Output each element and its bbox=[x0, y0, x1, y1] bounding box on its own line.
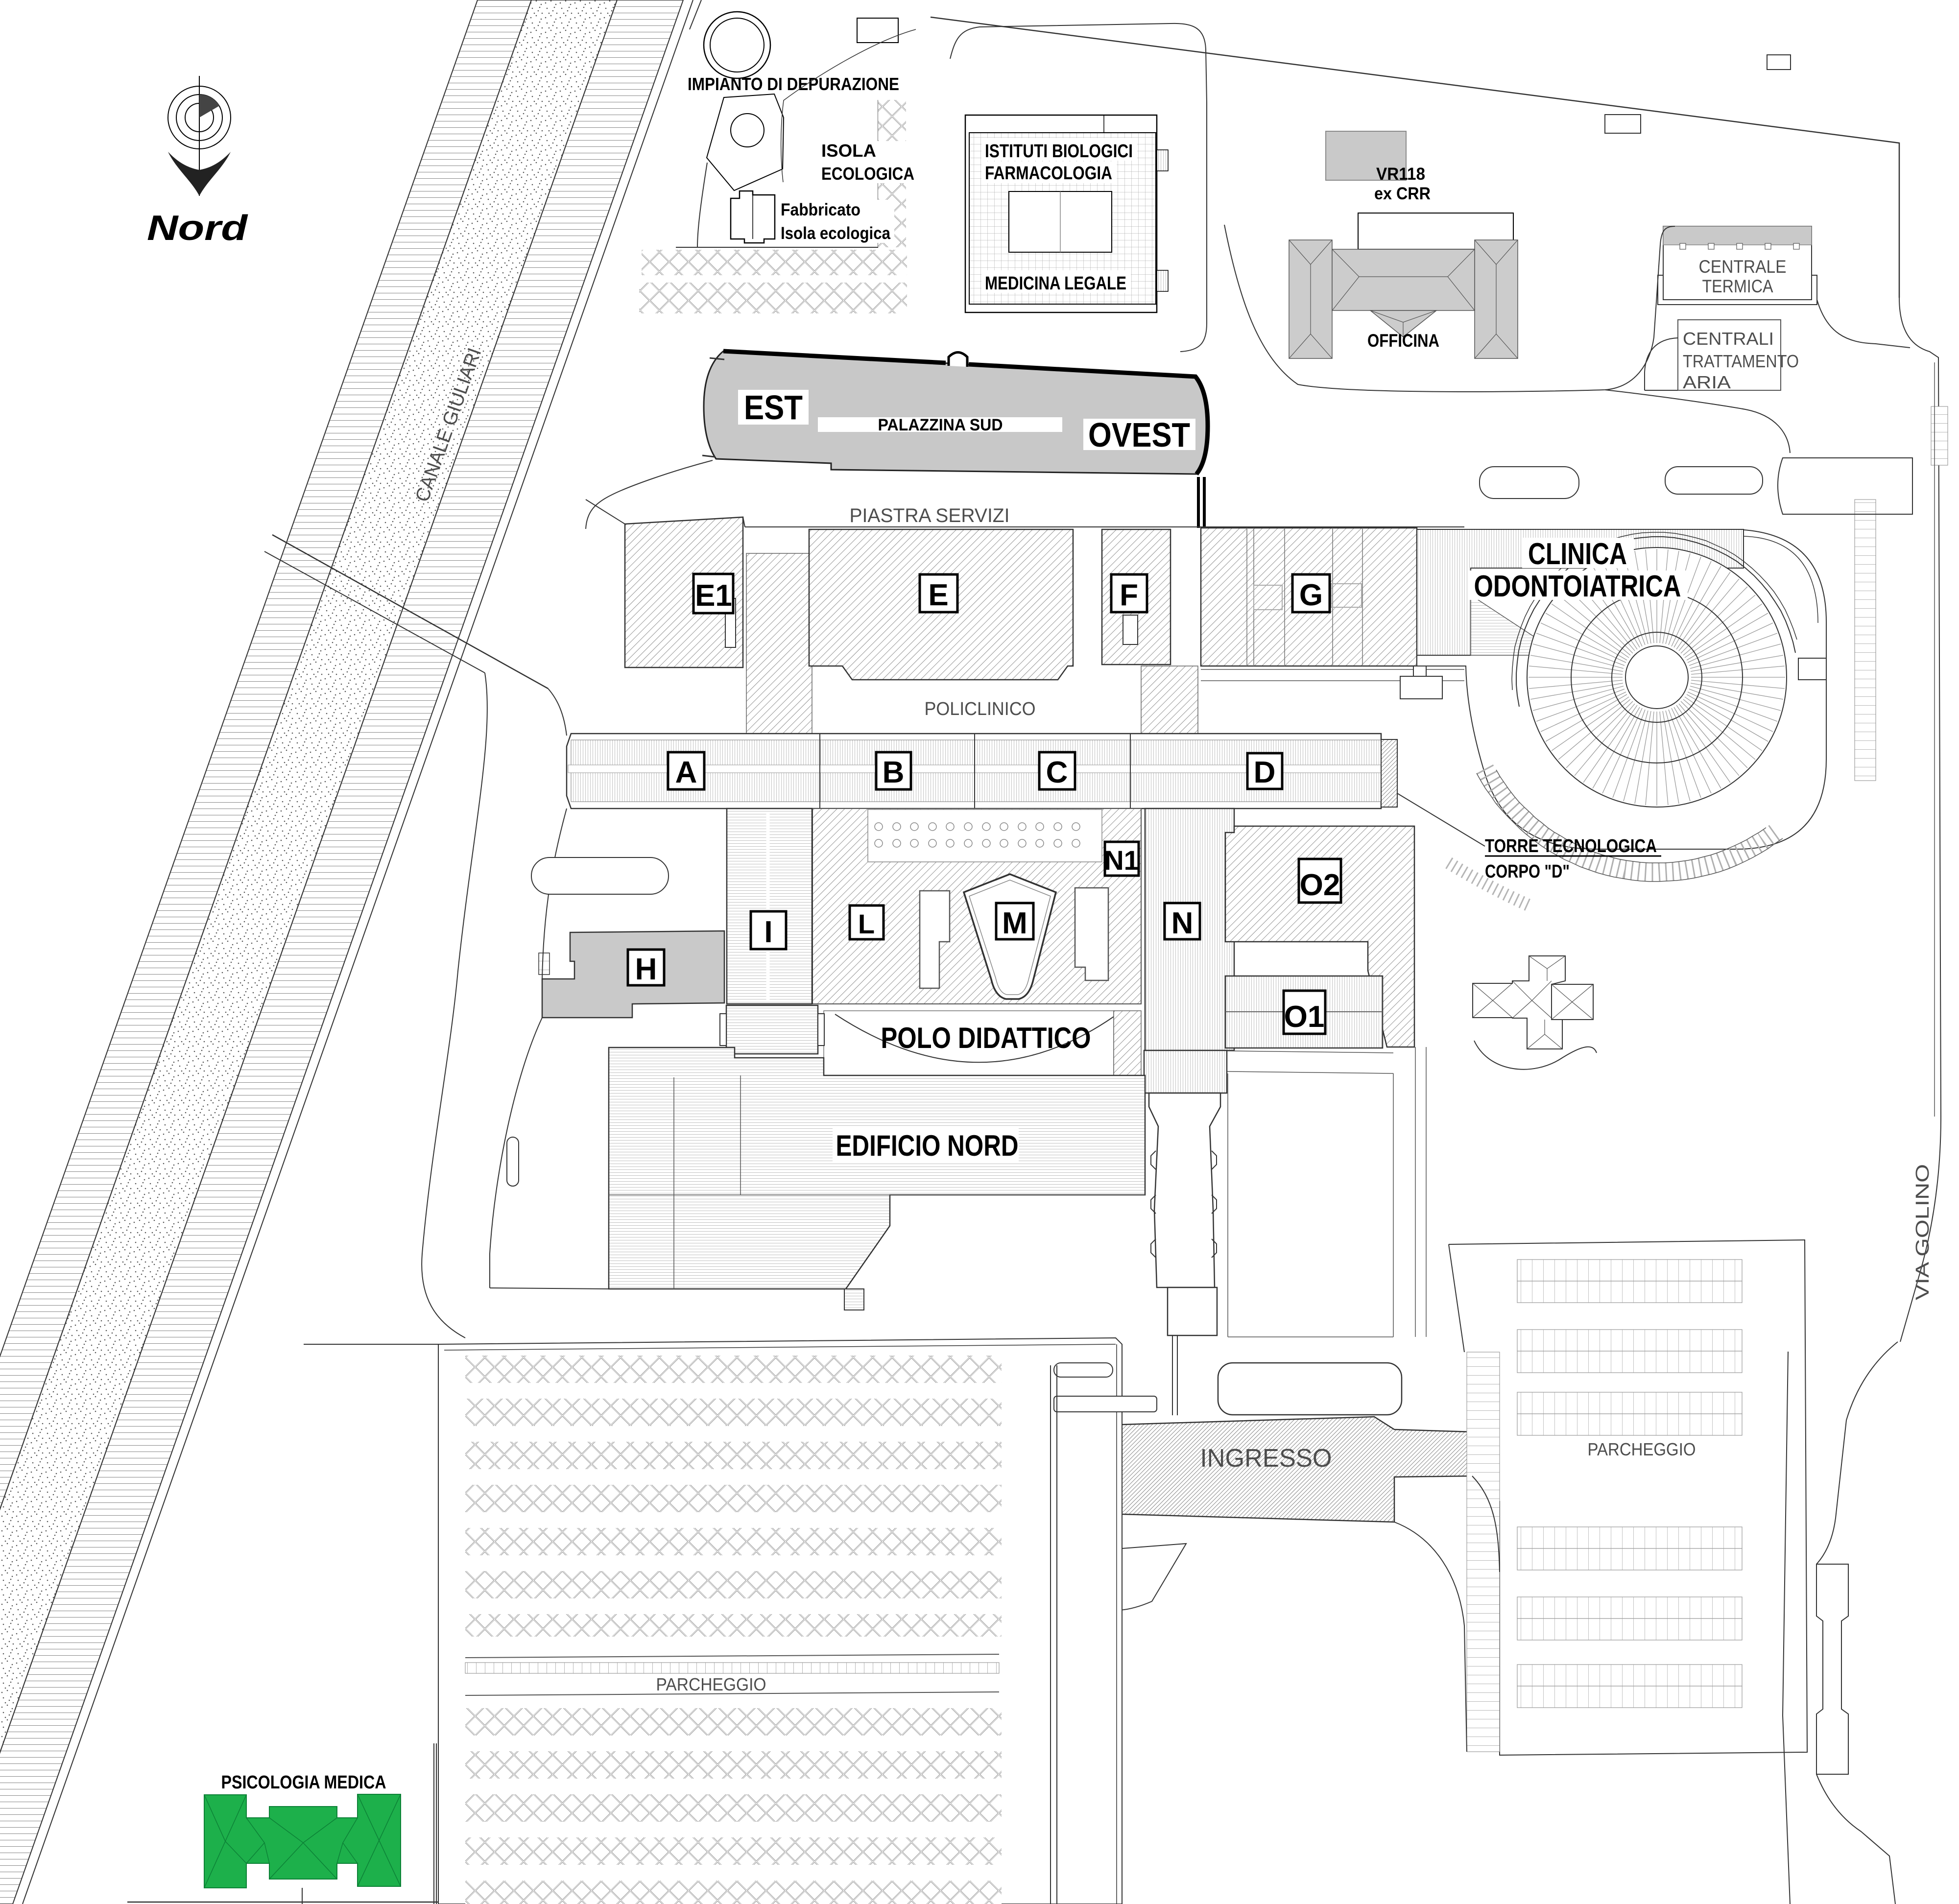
svg-text:ODONTOIATRICA: ODONTOIATRICA bbox=[1474, 570, 1681, 603]
svg-text:OVEST: OVEST bbox=[1088, 416, 1190, 454]
svg-text:ARIA: ARIA bbox=[1683, 372, 1731, 392]
svg-text:N: N bbox=[1171, 906, 1194, 940]
svg-text:PIASTRA SERVIZI: PIASTRA SERVIZI bbox=[850, 505, 1010, 526]
svg-text:O2: O2 bbox=[1300, 868, 1340, 902]
svg-text:L: L bbox=[858, 908, 875, 939]
svg-text:PARCHEGGIO: PARCHEGGIO bbox=[1588, 1439, 1696, 1459]
svg-text:VR118: VR118 bbox=[1376, 165, 1425, 184]
svg-text:E1: E1 bbox=[695, 579, 732, 613]
svg-text:ex CRR: ex CRR bbox=[1374, 184, 1431, 203]
svg-text:CENTRALE: CENTRALE bbox=[1699, 257, 1787, 277]
svg-text:POLO DIDATTICO: POLO DIDATTICO bbox=[881, 1022, 1091, 1054]
svg-text:ISTITUTI BIOLOGICI: ISTITUTI BIOLOGICI bbox=[985, 141, 1133, 162]
svg-text:EDIFICIO NORD: EDIFICIO NORD bbox=[836, 1129, 1019, 1162]
svg-text:C: C bbox=[1046, 756, 1068, 789]
svg-text:MEDICINA LEGALE: MEDICINA LEGALE bbox=[985, 273, 1126, 294]
svg-text:CENTRALI: CENTRALI bbox=[1683, 329, 1774, 349]
svg-text:TERMICA: TERMICA bbox=[1702, 276, 1773, 296]
svg-text:A: A bbox=[675, 756, 697, 789]
svg-text:INGRESSO: INGRESSO bbox=[1200, 1444, 1332, 1473]
svg-text:EST: EST bbox=[744, 388, 803, 427]
svg-text:TORRE TECNOLOGICA: TORRE TECNOLOGICA bbox=[1485, 836, 1657, 857]
svg-text:PALAZZINA SUD: PALAZZINA SUD bbox=[878, 416, 1003, 434]
svg-text:G: G bbox=[1299, 578, 1323, 612]
svg-text:Fabbricato: Fabbricato bbox=[781, 200, 860, 219]
svg-text:CORPO "D": CORPO "D" bbox=[1485, 861, 1570, 882]
svg-text:N1: N1 bbox=[1104, 845, 1139, 876]
svg-text:Isola ecologica: Isola ecologica bbox=[781, 224, 890, 243]
svg-text:B: B bbox=[883, 756, 905, 789]
svg-text:H: H bbox=[635, 952, 657, 986]
svg-text:ECOLOGICA: ECOLOGICA bbox=[821, 164, 914, 184]
svg-text:PSICOLOGIA MEDICA: PSICOLOGIA MEDICA bbox=[221, 1772, 386, 1793]
svg-text:VIA GOLINO: VIA GOLINO bbox=[1912, 1164, 1933, 1300]
svg-text:FARMACOLOGIA: FARMACOLOGIA bbox=[985, 163, 1112, 184]
svg-text:Nord: Nord bbox=[147, 209, 248, 248]
svg-text:ISOLA: ISOLA bbox=[821, 141, 876, 161]
svg-text:M: M bbox=[1002, 906, 1027, 940]
svg-text:D: D bbox=[1254, 756, 1276, 789]
svg-text:O1: O1 bbox=[1284, 1000, 1325, 1034]
svg-text:E: E bbox=[928, 578, 948, 612]
svg-text:PARCHEGGIO: PARCHEGGIO bbox=[656, 1674, 766, 1694]
svg-text:IMPIANTO DI DEPURAZIONE: IMPIANTO DI DEPURAZIONE bbox=[688, 74, 899, 94]
svg-text:F: F bbox=[1120, 578, 1138, 612]
svg-text:POLICLINICO: POLICLINICO bbox=[925, 699, 1036, 719]
svg-text:CLINICA: CLINICA bbox=[1528, 537, 1627, 571]
svg-text:I: I bbox=[764, 915, 772, 949]
svg-text:TRATTAMENTO: TRATTAMENTO bbox=[1683, 351, 1799, 371]
svg-text:OFFICINA: OFFICINA bbox=[1367, 331, 1439, 351]
